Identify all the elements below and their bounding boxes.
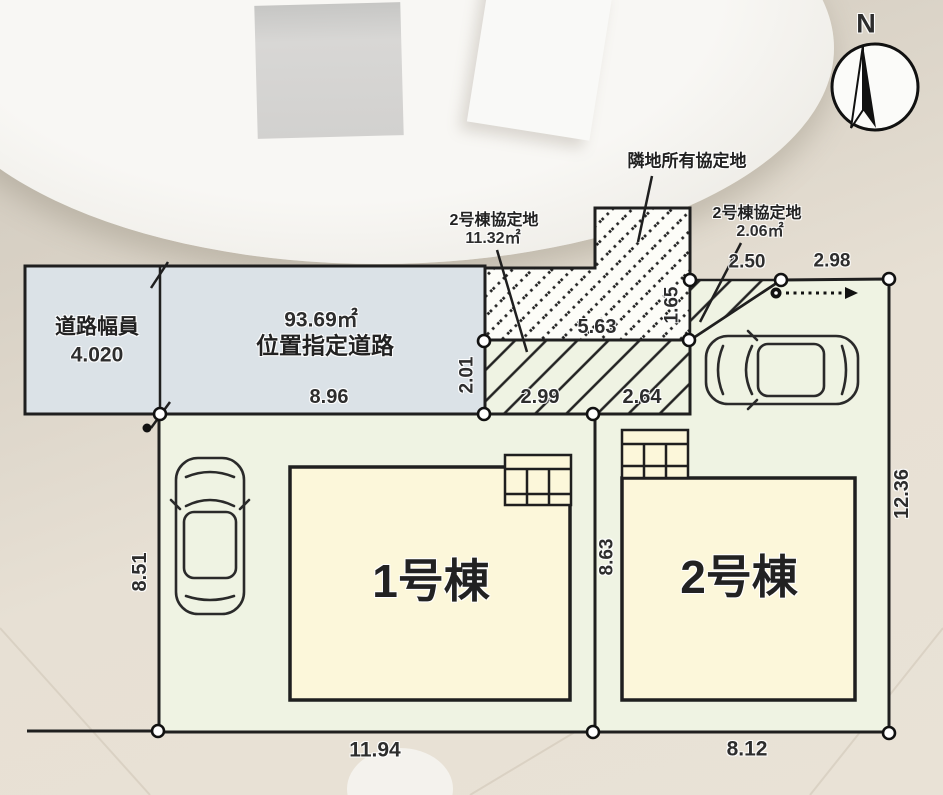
road-area <box>25 266 485 414</box>
dim-lot1-south-edge: 11.94 <box>349 740 400 761</box>
dim-lot2-south-edge: 8.12 <box>727 739 768 760</box>
neighbor-agreement-label: 隣地所有協定地 <box>628 153 747 170</box>
dim-strip-width-left: 2.99 <box>521 387 560 407</box>
bldg2-side-agreement-area: 2.06㎡ <box>736 224 783 240</box>
dim-triangle-height: 1.65 <box>663 287 682 324</box>
dim-lot1-west-edge: 8.51 <box>130 553 150 592</box>
dim-strip-width-total: 5.63 <box>578 317 617 337</box>
dim-strip-width-right: 2.64 <box>623 387 662 407</box>
dim-strip-height: 2.01 <box>458 357 477 394</box>
road-width-value: 4.020 <box>71 345 124 366</box>
porch-grid-1 <box>505 455 571 505</box>
dim-lot2-top-edge: 2.98 <box>814 252 851 271</box>
porch-grid-2 <box>622 430 688 478</box>
dim-road-frontage: 8.96 <box>310 387 349 407</box>
site-plan-diagram: N 道路幅員 4.020 93.69㎡ 位置指定道路 8.96 隣地所有協定地 … <box>0 0 943 795</box>
bldg2-main-agreement-area: 11.32㎡ <box>465 231 520 247</box>
road-name-label: 位置指定道路 <box>256 335 394 358</box>
building-1-label: 1号棟 <box>372 558 490 604</box>
plan-drawing <box>0 0 943 795</box>
dim-lot2-east-edge: 12.36 <box>892 469 912 519</box>
building-2-label: 2号棟 <box>680 554 798 600</box>
bldg2-main-agreement-label: 2号棟協定地 <box>450 213 539 229</box>
bldg2-side-agreement-label: 2号棟協定地 <box>713 206 802 222</box>
survey-marker <box>143 424 152 433</box>
road-width-label: 道路幅員 <box>55 317 139 338</box>
compass-icon <box>832 44 918 130</box>
dim-lot-divider: 8.63 <box>598 539 617 576</box>
dim-triangle-width: 2.50 <box>729 253 766 272</box>
compass-north-label: N <box>856 11 876 38</box>
road-area-value: 93.69㎡ <box>284 310 358 331</box>
